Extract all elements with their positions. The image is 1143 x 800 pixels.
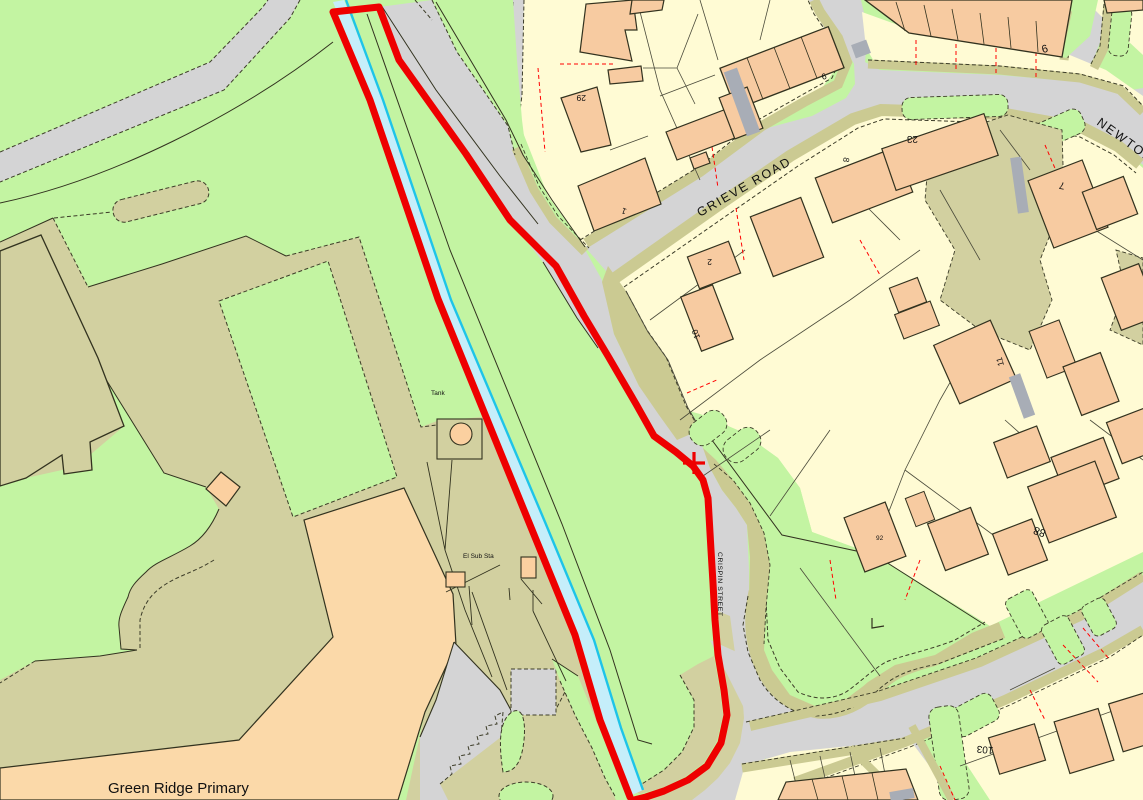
svg-text:Green Ridge Primary: Green Ridge Primary: [108, 780, 249, 797]
svg-text:29: 29: [576, 93, 586, 103]
svg-text:CRISPIN STREET: CRISPIN STREET: [716, 552, 723, 617]
svg-text:23: 23: [906, 133, 918, 144]
svg-text:92: 92: [876, 535, 884, 542]
svg-text:El Sub Sta: El Sub Sta: [463, 553, 494, 560]
svg-text:Tank: Tank: [431, 390, 445, 397]
svg-text:2: 2: [707, 257, 712, 267]
svg-text:103: 103: [976, 743, 994, 755]
